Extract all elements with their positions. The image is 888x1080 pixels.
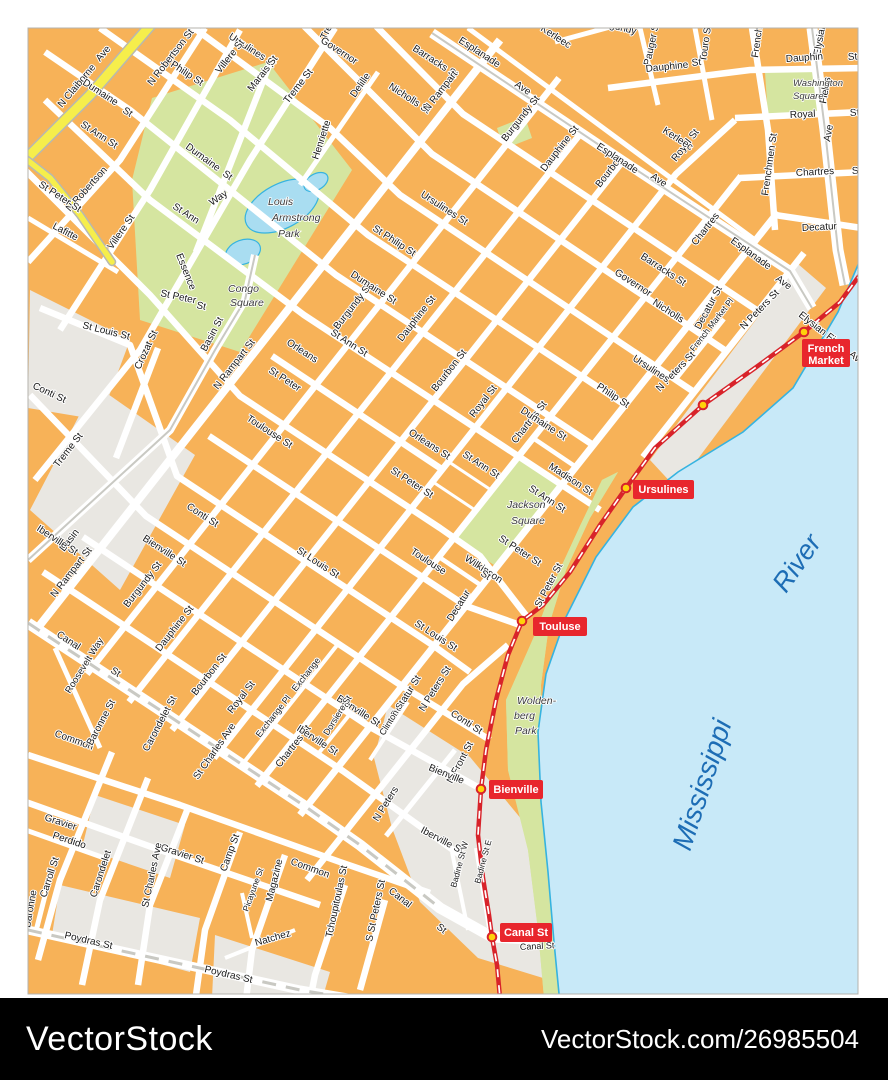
station-dot-touluse xyxy=(518,617,527,626)
park-label-armstrong: Armstrong xyxy=(271,212,321,224)
stock-map-image: N ClaiborneAveDumaineStDumaineStN Robert… xyxy=(0,0,888,1080)
street-label-decatur: Decatur xyxy=(802,221,838,234)
station-label-french-market: French xyxy=(808,343,845,355)
street-label-st: St xyxy=(691,57,702,69)
station-label-canal-st: Canal St xyxy=(504,927,548,939)
park-label-louis: Louis xyxy=(268,196,294,208)
park-label-jackson: Jackson xyxy=(506,499,546,511)
watermark-bar: VectorStock VectorStock.com/26985504 xyxy=(0,998,888,1080)
street-label-st: St xyxy=(848,52,858,63)
station-dot-ursulines xyxy=(622,484,631,493)
station-label-french-market: Market xyxy=(808,355,844,367)
park-label-square: Square xyxy=(793,91,824,102)
park-label-square: Square xyxy=(511,515,545,527)
park-label-square: Square xyxy=(230,297,264,309)
park-label-park: Park xyxy=(515,725,537,737)
park-label-park: Park xyxy=(278,228,300,240)
park-label-washington: Washington xyxy=(793,78,843,89)
map-canvas: N ClaiborneAveDumaineStDumaineStN Robert… xyxy=(10,0,872,1005)
park-label-congo: Congo xyxy=(228,283,259,295)
street-label-royal: Royal xyxy=(790,109,816,121)
park-label-berg: berg xyxy=(514,710,535,722)
station-label-bienville: Bienville xyxy=(493,784,538,796)
station-label-ursulines: Ursulines xyxy=(638,484,688,496)
station-dot-stop xyxy=(699,401,708,410)
park-label-wolden: Wolden- xyxy=(517,695,557,707)
vectorstock-logo: VectorStock xyxy=(26,1020,213,1059)
image-reference-url[interactable]: VectorStock.com/26985504 xyxy=(541,1024,859,1055)
station-label-touluse: Touluse xyxy=(539,621,580,633)
station-dot-canal-st xyxy=(488,933,497,942)
new-orleans-french-quarter-map: N ClaiborneAveDumaineStDumaineStN Robert… xyxy=(0,0,888,1080)
street-label-chartres: Chartres xyxy=(796,166,835,179)
station-dot-bienville xyxy=(477,785,486,794)
station-dot-french-market xyxy=(800,328,809,337)
